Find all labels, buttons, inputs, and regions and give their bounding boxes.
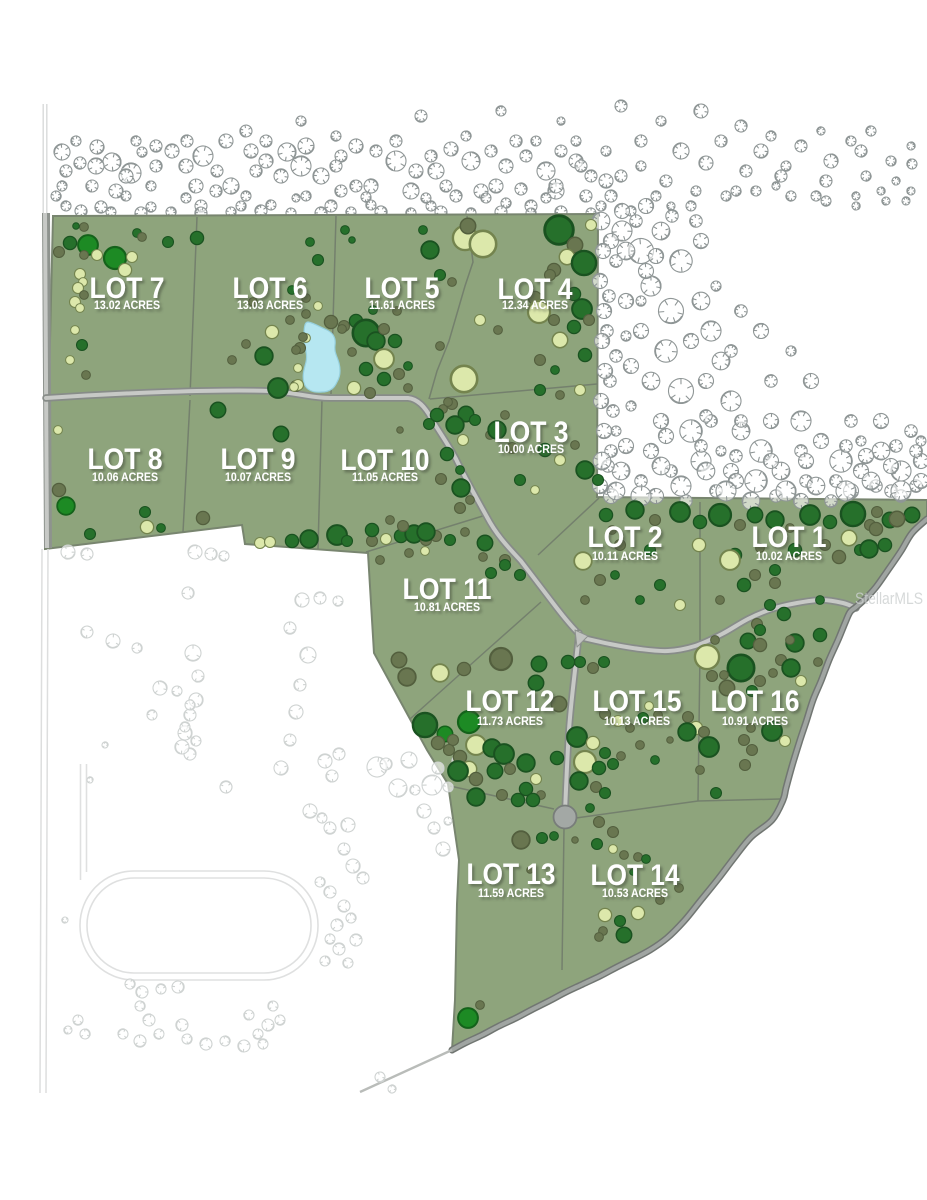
svg-text:10.11 ACRES: 10.11 ACRES (592, 549, 658, 563)
svg-text:10.91 ACRES: 10.91 ACRES (722, 714, 788, 728)
svg-text:11.59 ACRES: 11.59 ACRES (478, 886, 544, 900)
svg-text:10.00 ACRES: 10.00 ACRES (498, 442, 564, 456)
svg-text:10.02 ACRES: 10.02 ACRES (756, 549, 822, 563)
svg-text:StellarMLS: StellarMLS (855, 589, 923, 608)
svg-text:12.34 ACRES: 12.34 ACRES (502, 298, 568, 312)
svg-text:10.53 ACRES: 10.53 ACRES (602, 886, 668, 900)
svg-text:10.81 ACRES: 10.81 ACRES (414, 600, 480, 614)
svg-text:10.06 ACRES: 10.06 ACRES (92, 470, 158, 484)
svg-text:11.05 ACRES: 11.05 ACRES (352, 470, 418, 484)
svg-text:13.02 ACRES: 13.02 ACRES (94, 298, 160, 312)
svg-text:11.73 ACRES: 11.73 ACRES (477, 714, 543, 728)
svg-text:13.03 ACRES: 13.03 ACRES (237, 298, 303, 312)
svg-text:10.13 ACRES: 10.13 ACRES (604, 714, 670, 728)
svg-text:10.07 ACRES: 10.07 ACRES (225, 470, 291, 484)
svg-text:11.61 ACRES: 11.61 ACRES (369, 298, 435, 312)
